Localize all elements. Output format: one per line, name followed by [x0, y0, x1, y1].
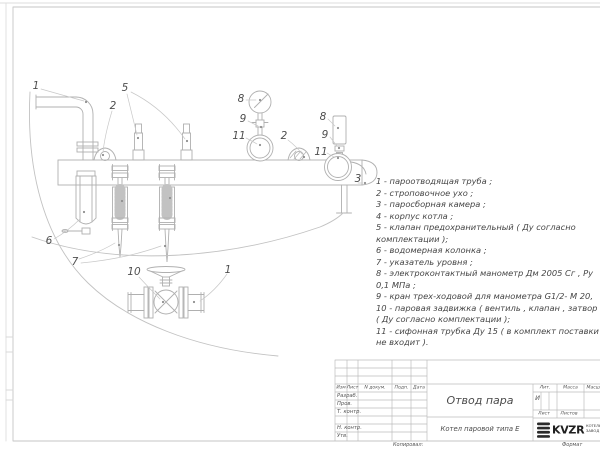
titleblock-col-izm: Изм: [336, 386, 345, 391]
outlet-pipe: [36, 95, 98, 160]
titleblock-listov-label: Листов: [560, 412, 577, 417]
leader-lines: [41, 89, 363, 301]
kvzr-logo-icon: [537, 423, 550, 438]
safety-valves: [133, 124, 192, 160]
footer-kopiroval: Копировал:: [393, 442, 423, 448]
legend-line: ( Ду согласно комплектации );: [376, 314, 599, 326]
titleblock-lit-label: Лит.: [540, 386, 551, 391]
part-label-5: 5: [122, 82, 129, 94]
legend-line: 6 - водомерная колонка ;: [376, 245, 599, 257]
drawing-sheet: 1 2 5 8 9 11 2 8 9 11 3 6 7 10 1 1 - пар…: [0, 0, 600, 450]
kvzr-logo-text: KVZR: [552, 424, 584, 437]
titleblock-list-label: Лист: [538, 412, 550, 417]
legend-line: не входит ).: [376, 337, 599, 349]
kvzr-logo-caption-1: КОТЕЛЬНЫЙ: [586, 424, 600, 429]
titleblock-masshtab-label: Масштаб: [587, 386, 600, 391]
titleblock-col-podp: Подп.: [395, 386, 409, 391]
legend-line: 2 - строповочное ухо ;: [376, 188, 599, 200]
legend-line: комплектации );: [376, 234, 599, 246]
part-label-3: 3: [355, 173, 362, 185]
legend-line: 8 - электроконтактный манометр Дм 2005 С…: [376, 268, 599, 280]
legend-line: 0,1 МПа ;: [376, 280, 599, 292]
legend-line: 10 - паровая задвижка ( вентиль , клапан…: [376, 303, 599, 315]
part-label-8-front: 8: [238, 93, 245, 105]
legend-line: 3 - паросборная камера ;: [376, 199, 599, 211]
titleblock-col-data: Дата: [413, 386, 425, 391]
titleblock-row-tkontr: Т. контр.: [337, 409, 361, 415]
legend-line: 5 - клапан предохранительный ( Ду соглас…: [376, 222, 599, 234]
part-label-2-right: 2: [281, 130, 288, 142]
titleblock-col-list: Лист: [347, 386, 359, 391]
level-indicator-2: [159, 165, 175, 263]
part-label-1: 1: [33, 80, 40, 92]
titleblock-row-nkontr: Н. контр.: [337, 425, 362, 431]
kvzr-logo-caption-2: ЗАВОД Р: [586, 429, 600, 434]
part-label-11-side: 11: [314, 146, 327, 158]
manometer-side: [325, 116, 367, 213]
legend-line: 7 - указатель уровня ;: [376, 257, 599, 269]
part-label-11-front: 11: [232, 130, 245, 142]
titleblock-lit-value: И: [535, 394, 540, 402]
manometer-front: [247, 91, 273, 161]
legend-line: 1 - пароотводящая труба ;: [376, 176, 599, 188]
legend-line: 4 - корпус котла ;: [376, 211, 599, 223]
legend-line: 11 - сифонная трубка Ду 15 ( в комплект …: [376, 326, 599, 338]
part-label-9-front: 9: [240, 113, 247, 125]
footer-format: Формат: [562, 442, 582, 448]
legend: 1 - пароотводящая труба ; 2 - строповочн…: [376, 176, 599, 349]
part-label-6: 6: [46, 235, 53, 247]
document-subtitle: Котел паровой типа Е: [427, 417, 533, 441]
part-label-8-side: 8: [320, 111, 327, 123]
part-label-1-bottom: 1: [225, 264, 232, 276]
titleblock-massa-label: Масса: [563, 386, 578, 391]
titleblock-row-razrab: Разраб.: [337, 393, 357, 399]
part-label-7: 7: [72, 256, 79, 268]
part-label-10: 10: [127, 266, 140, 278]
part-label-2-left: 2: [110, 100, 117, 112]
titleblock-col-ndokum: N докум.: [364, 386, 385, 391]
water-column: [62, 171, 96, 234]
document-title: Отвод пара: [427, 384, 533, 417]
part-label-9-side: 9: [322, 129, 329, 141]
titleblock-row-utv: Утв.: [337, 433, 348, 439]
legend-line: 9 - кран трех-ходовой для манометра G1/2…: [376, 291, 599, 303]
boiler-shell-outline: [29, 92, 343, 356]
lifting-lug-left: [94, 148, 116, 161]
titleblock-row-prov: Пров.: [337, 401, 352, 407]
